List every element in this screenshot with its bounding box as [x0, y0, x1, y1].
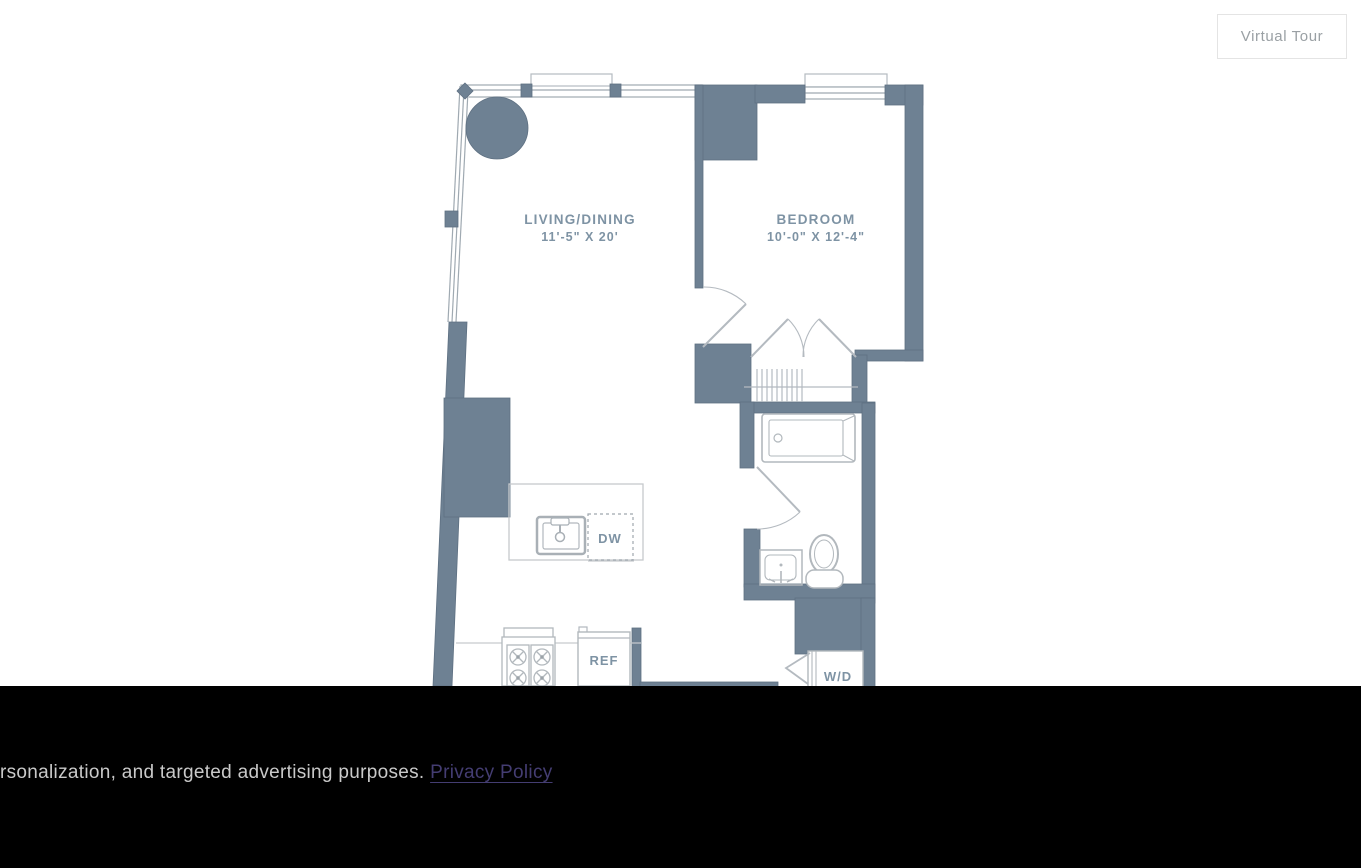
toilet-tank — [806, 570, 843, 588]
bathroom-door — [757, 467, 800, 529]
wall-right — [905, 85, 923, 361]
toilet — [806, 535, 843, 588]
mullion-top-1 — [521, 84, 532, 97]
bathtub — [762, 414, 855, 462]
dishwasher: DW — [588, 514, 633, 560]
listing-page: { "toolbar": { "virtual_tour_label": "Vi… — [0, 0, 1361, 868]
bedroom-door — [703, 287, 746, 347]
wall-left-bumpout — [444, 398, 510, 517]
tub-drain — [774, 434, 782, 442]
washer-dryer-label: W/D — [824, 669, 852, 684]
wall-closet-left — [695, 344, 751, 403]
living-dining-dimensions: 11'-5" X 20' — [541, 230, 618, 244]
closet-doors — [751, 319, 856, 357]
kitchen-sink — [537, 517, 585, 554]
bathroom-sink — [760, 550, 802, 585]
wall-closet-right — [852, 355, 867, 404]
refrigerator-label: REF — [590, 653, 619, 668]
window-bump-living — [531, 74, 612, 86]
refrigerator: REF — [578, 627, 630, 686]
wall-divider — [695, 85, 703, 288]
wall-closet-bottom — [752, 402, 875, 413]
wall-bedroom-corner-block — [695, 85, 757, 160]
stove — [502, 628, 555, 686]
wall-bath-right — [862, 403, 875, 603]
wall-kitchen-thin — [632, 628, 641, 688]
bifold-door — [786, 653, 810, 684]
privacy-policy-link[interactable]: Privacy Policy — [430, 762, 552, 783]
closet — [744, 369, 858, 402]
cookie-banner: rsonalization, and targeted advertising … — [0, 686, 1361, 868]
wall-bath-left-lower — [744, 529, 760, 587]
wall-bath-left-upper — [740, 402, 754, 468]
wall-block-hall — [795, 598, 871, 654]
dishwasher-label: DW — [598, 531, 622, 546]
window-wall-top — [461, 85, 702, 97]
mullion-left — [445, 211, 458, 227]
cookie-message-text: rsonalization, and targeted advertising … — [0, 762, 430, 783]
living-dining-label: LIVING/DINING — [524, 212, 636, 227]
faucet-plate — [551, 518, 569, 525]
wall-bedroom-top — [755, 85, 805, 103]
mullion-top-2 — [610, 84, 621, 97]
cookie-message: rsonalization, and targeted advertising … — [0, 762, 553, 784]
bedroom-label: BEDROOM — [777, 212, 856, 227]
faucet-icon — [556, 533, 565, 542]
closet-hangers — [757, 369, 802, 402]
column-round — [466, 97, 528, 159]
bedroom-dimensions: 10'-0" X 12'-4" — [767, 230, 865, 244]
walls — [433, 83, 923, 688]
window-bump-bedroom — [805, 74, 887, 87]
